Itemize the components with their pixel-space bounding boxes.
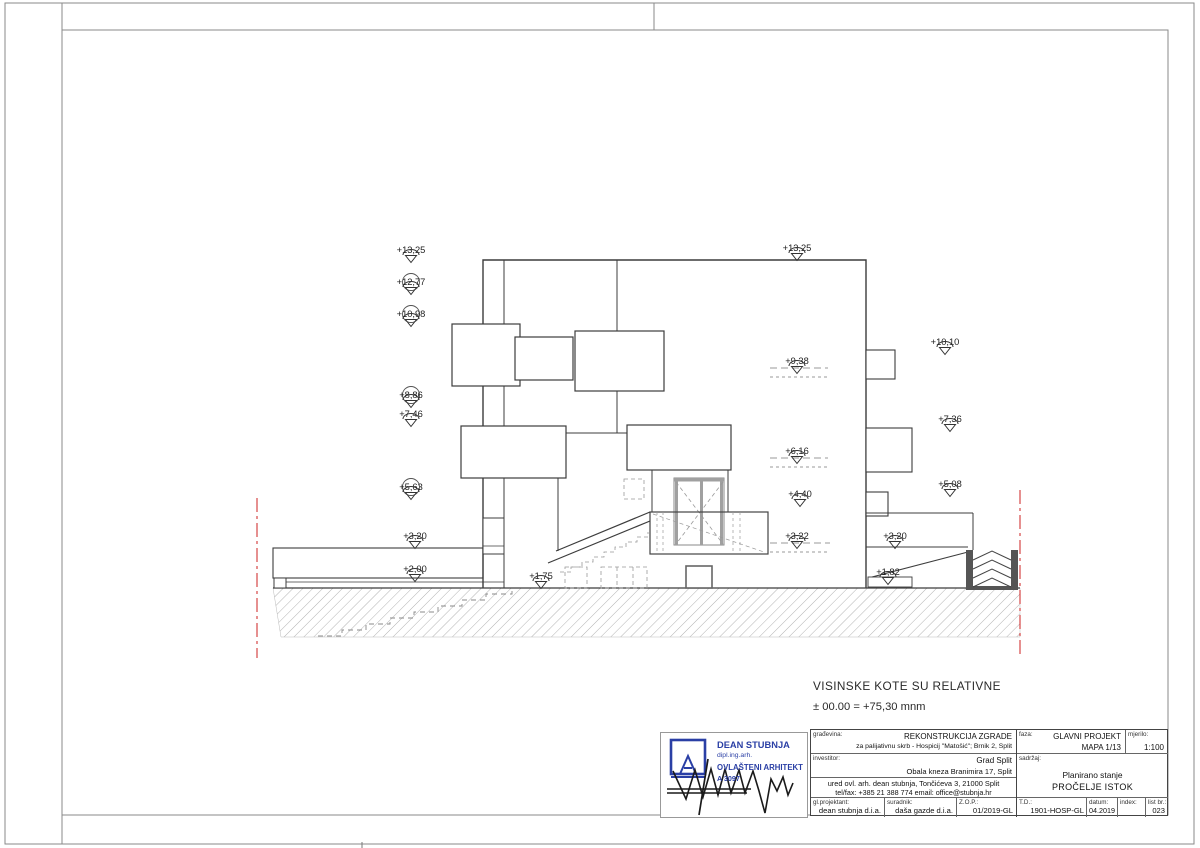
td-value: 1901-HOSP-GL xyxy=(1030,806,1084,815)
titleblock-investitor-cell: investitor: Grad Split Obala kneza Brani… xyxy=(811,754,1016,778)
zop-label: Z.O.P.: xyxy=(959,799,978,806)
datum-value: 04.2019 xyxy=(1089,806,1115,815)
mjerilo-value: 1:100 xyxy=(1144,743,1164,752)
faza-label: faza: xyxy=(1019,731,1033,738)
sheet-frame xyxy=(5,3,1194,848)
elevation-markers-left: +13,25 +12,77 +10,98 +8,86 +7,46 +5,63 +… xyxy=(397,245,553,589)
elevation-note: VISINSKE KOTE SU RELATIVNE ± 00.00 = +75… xyxy=(813,679,1001,713)
faza-line1: GLAVNI PROJEKT xyxy=(1053,732,1121,741)
right-side-protrusions xyxy=(866,350,912,516)
investitor-label: investitor: xyxy=(813,755,840,762)
title-block: građevina: REKONSTRUKCIJA ZGRADE za pali… xyxy=(810,729,1168,816)
sadrzaj-label: sadržaj: xyxy=(1019,755,1041,762)
mjerilo-label: mjerilo: xyxy=(1128,731,1148,738)
titleblock-gradevina-cell: građevina: REKONSTRUKCIJA ZGRADE za pali… xyxy=(811,730,1016,754)
stamp-number: A 3097 xyxy=(717,774,740,783)
index-label: index: xyxy=(1120,799,1137,806)
titleblock-index-cell: index: xyxy=(1117,798,1145,817)
elevation-markers-right-inner: +13,25 +9,38 +6,16 +4,40 +3,22 xyxy=(783,243,812,549)
stamp-name: DEAN STUBNJA xyxy=(717,740,790,750)
titleblock-suradnik-cell: suradnik: daša gazde d.i.a. xyxy=(884,798,956,817)
sadrzaj-line2: PROČELJE ISTOK xyxy=(1017,782,1168,792)
titleblock-right-section: faza: GLAVNI PROJEKT MAPA 1/13 mjerilo: … xyxy=(1016,730,1169,817)
investitor-line1: Grad Split xyxy=(976,756,1012,765)
titleblock-sadrzaj-cell: sadržaj: Planirano stanje PROČELJE ISTOK xyxy=(1017,754,1168,798)
suradnik-value: daša gazde d.i.a. xyxy=(895,806,953,815)
titleblock-glprojektant-cell: gl.projektant: dean stubnja d.i.a. xyxy=(811,798,884,817)
ured-line2: tel/fax: +385 21 388 774 email: office@s… xyxy=(811,788,1016,797)
stamp-license: OVLAŠTENI ARHITEKT xyxy=(717,763,803,772)
entrance-stair-dashed xyxy=(560,479,648,588)
titleblock-faza-cell: faza: GLAVNI PROJEKT MAPA 1/13 xyxy=(1017,730,1126,754)
facade-volume-boxes xyxy=(452,324,731,478)
sadrzaj-line1: Planirano stanje xyxy=(1017,770,1168,780)
stamp-title: dipl.ing.arh. xyxy=(717,752,752,759)
titleblock-mjerilo-cell: mjerilo: 1:100 xyxy=(1126,730,1168,754)
gradevina-line1: REKONSTRUKCIJA ZGRADE xyxy=(904,732,1012,741)
listbr-label: list br.: xyxy=(1148,799,1166,806)
site-ground xyxy=(273,588,1020,637)
external-stair-enclosure xyxy=(966,550,1018,590)
left-boundary-wall xyxy=(273,548,504,588)
td-label: T.D.: xyxy=(1019,799,1032,806)
investitor-line2: Obala kneza Branimira 17, Split xyxy=(907,767,1012,776)
architect-logo xyxy=(671,740,705,777)
glprojektant-label: gl.projektant: xyxy=(813,799,849,806)
elevation-drawing-canvas: +13,25 +12,77 +10,98 +8,86 +7,46 +5,63 +… xyxy=(0,0,1200,848)
titleblock-td-cell: T.D.: 1901-HOSP-GL xyxy=(1017,798,1086,817)
entrance-porch xyxy=(548,512,768,563)
pilaster-window xyxy=(483,518,504,554)
faza-line2: MAPA 1/13 xyxy=(1082,743,1121,752)
datum-label: datum: xyxy=(1089,799,1108,806)
zop-value: 01/2019-GL xyxy=(973,806,1013,815)
note-line2: ± 00.00 = +75,30 mnm xyxy=(813,701,926,713)
glprojektant-value: dean stubnja d.i.a. xyxy=(819,806,881,815)
titleblock-listbr-cell: list br.: 023 xyxy=(1145,798,1168,817)
ured-line1: ured ovl. arh. dean stubnja, Tončićeva 3… xyxy=(811,779,1016,788)
suradnik-label: suradnik: xyxy=(887,799,913,806)
gradevina-line2: za palijativnu skrb - Hospicij "Matošić"… xyxy=(856,743,1012,750)
titleblock-datum-cell: datum: 04.2019 xyxy=(1086,798,1117,817)
architect-stamp: DEAN STUBNJA dipl.ing.arh. OVLAŠTENI ARH… xyxy=(660,732,808,818)
note-line1: VISINSKE KOTE SU RELATIVNE xyxy=(813,679,1001,693)
gradevina-label: građevina: xyxy=(813,731,842,738)
grade-box xyxy=(686,566,712,588)
titleblock-ured-cell: ured ovl. arh. dean stubnja, Tončićeva 3… xyxy=(811,778,1016,798)
listbr-value: 023 xyxy=(1152,806,1165,815)
titleblock-zop-cell: Z.O.P.: 01/2019-GL xyxy=(956,798,1016,817)
